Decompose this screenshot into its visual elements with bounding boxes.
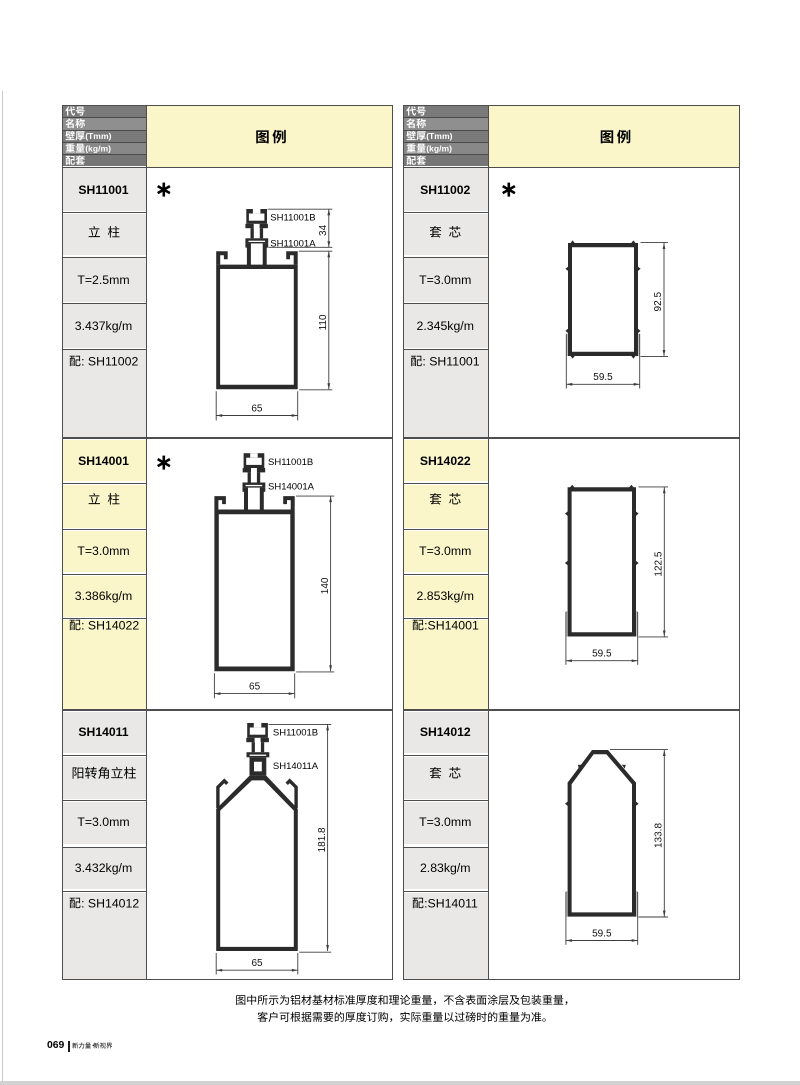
svg-text:(Tmm): (Tmm) (85, 131, 111, 141)
svg-text:(kg/m): (kg/m) (85, 143, 111, 153)
svg-text:SH11001A: SH11001A (270, 239, 316, 250)
svg-text:65: 65 (251, 958, 263, 969)
svg-text:181.8: 181.8 (317, 827, 328, 852)
svg-text:: SH14022: : SH14022 (81, 618, 139, 632)
svg-text:140: 140 (320, 577, 331, 594)
svg-text:(kg/m): (kg/m) (426, 143, 452, 153)
svg-text:SH11001B: SH11001B (270, 213, 315, 224)
svg-text:: SH11002: : SH11002 (81, 354, 138, 368)
svg-text::SH14011: :SH14011 (424, 896, 478, 910)
svg-text:SH11001B: SH11001B (273, 727, 318, 738)
svg-text:133.8: 133.8 (654, 823, 665, 848)
svg-text:SH14001A: SH14001A (268, 482, 315, 493)
svg-text:59.5: 59.5 (592, 928, 612, 939)
svg-text::SH14001: :SH14001 (424, 618, 479, 632)
svg-text:: SH14012: : SH14012 (81, 896, 139, 910)
svg-text:34: 34 (318, 224, 329, 236)
svg-text:110: 110 (318, 314, 329, 330)
svg-text:SH14011A: SH14011A (273, 761, 319, 772)
svg-text:65: 65 (249, 681, 261, 692)
svg-text:SH11001B: SH11001B (268, 457, 313, 468)
svg-text:65: 65 (251, 403, 263, 414)
svg-text:92.5: 92.5 (653, 292, 664, 312)
svg-text:59.5: 59.5 (593, 372, 613, 383)
svg-text:122.5: 122.5 (654, 551, 665, 576)
svg-text:(Tmm): (Tmm) (426, 131, 452, 141)
svg-text:: SH11001: : SH11001 (422, 354, 479, 368)
svg-text:59.5: 59.5 (592, 649, 612, 660)
